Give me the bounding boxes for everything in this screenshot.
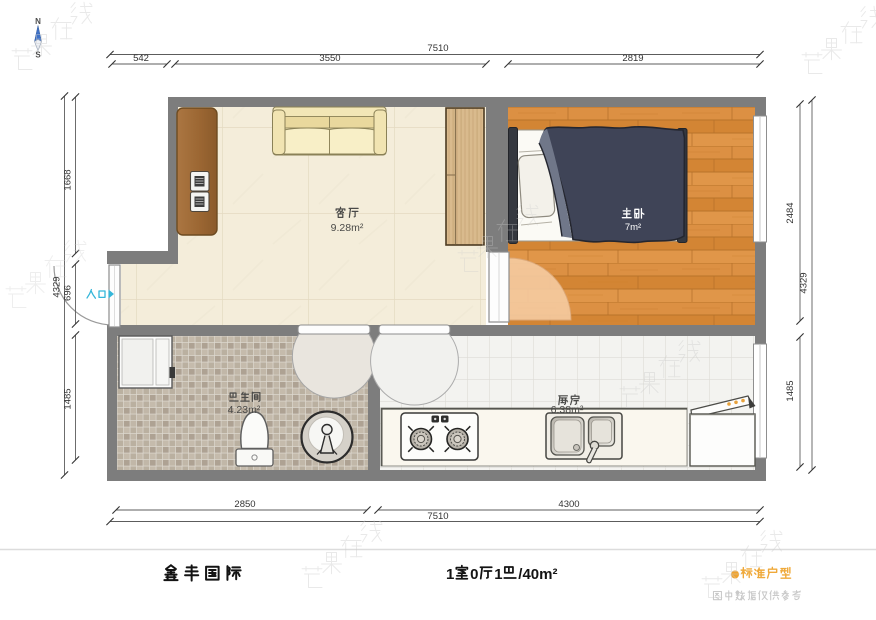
svg-text:/40m²: /40m² [518,566,557,583]
svg-text:542: 542 [133,53,149,64]
svg-text:4.23m²: 4.23m² [228,404,261,416]
svg-text:1668: 1668 [63,169,74,190]
svg-text:4300: 4300 [558,499,579,510]
svg-text:1: 1 [494,566,502,583]
svg-text:6.38m²: 6.38m² [551,404,584,416]
svg-text:2819: 2819 [622,53,643,64]
svg-text:N: N [35,17,41,26]
svg-text:7m²: 7m² [625,222,641,233]
svg-text:0: 0 [470,566,478,583]
svg-text:2850: 2850 [234,499,255,510]
svg-text:1: 1 [446,566,454,583]
svg-text:1485: 1485 [785,380,796,401]
svg-text:4329: 4329 [52,276,63,297]
svg-text:4329: 4329 [799,272,810,293]
svg-text:7510: 7510 [427,511,448,522]
svg-text:1485: 1485 [63,388,74,409]
svg-text:7510: 7510 [427,43,448,54]
svg-text:2484: 2484 [785,202,796,223]
svg-text:696: 696 [63,285,74,301]
svg-text:9.28m²: 9.28m² [331,222,364,234]
svg-text:3550: 3550 [319,53,340,64]
